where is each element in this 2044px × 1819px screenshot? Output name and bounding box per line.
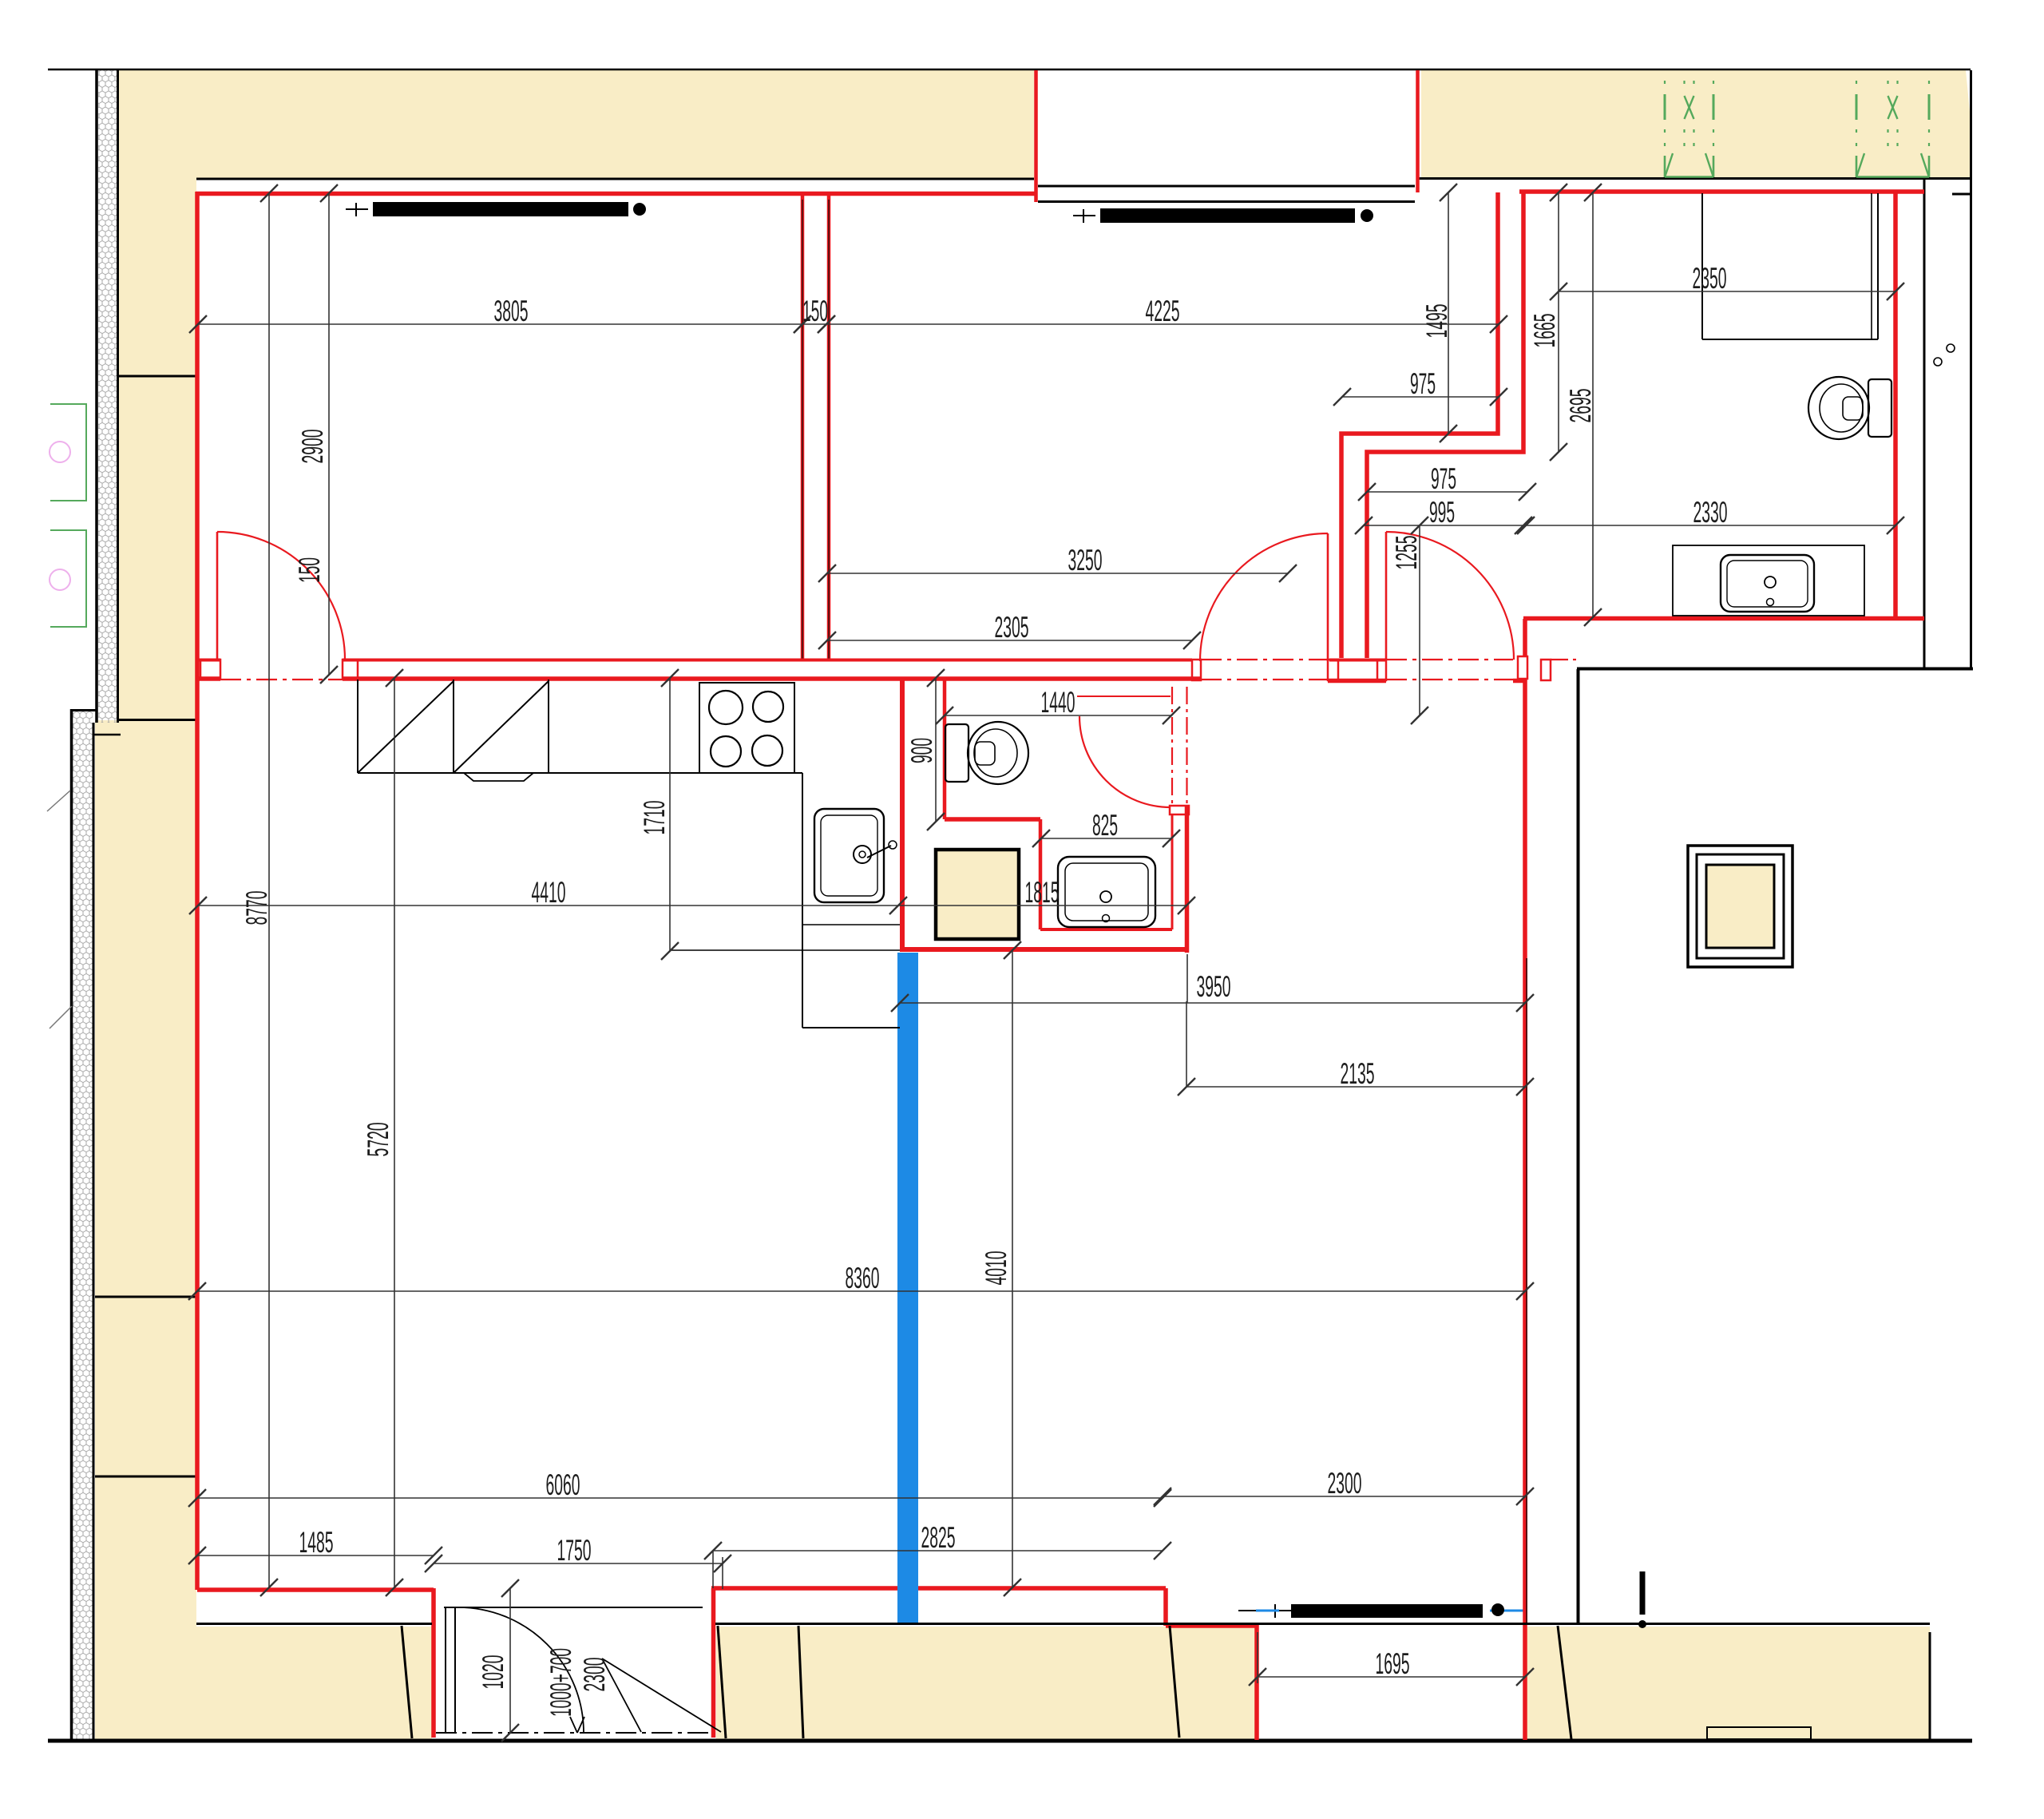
svg-text:4410: 4410 — [532, 876, 566, 909]
svg-text:1750: 1750 — [557, 1534, 592, 1567]
svg-text:2695: 2695 — [1564, 389, 1597, 423]
svg-text:1255: 1255 — [1390, 536, 1423, 570]
svg-text:3250: 3250 — [1068, 544, 1103, 577]
svg-text:2300: 2300 — [578, 1658, 611, 1692]
svg-text:2900: 2900 — [296, 430, 329, 464]
svg-text:1710: 1710 — [638, 801, 671, 835]
svg-text:8770: 8770 — [240, 891, 273, 925]
svg-text:995: 995 — [1429, 496, 1455, 529]
svg-text:3950: 3950 — [1197, 970, 1231, 1003]
svg-text:975: 975 — [1410, 367, 1436, 400]
svg-text:1665: 1665 — [1528, 314, 1561, 348]
svg-text:2350: 2350 — [1693, 262, 1727, 295]
svg-text:975: 975 — [1431, 462, 1456, 495]
svg-text:4225: 4225 — [1146, 295, 1180, 327]
svg-text:5720: 5720 — [362, 1123, 394, 1157]
svg-text:150: 150 — [802, 295, 828, 327]
svg-text:2300: 2300 — [1328, 1467, 1362, 1500]
svg-text:1000+700: 1000+700 — [545, 1648, 577, 1717]
svg-text:4010: 4010 — [980, 1251, 1012, 1286]
svg-text:1440: 1440 — [1041, 686, 1075, 719]
svg-text:8360: 8360 — [846, 1262, 880, 1294]
svg-text:1695: 1695 — [1376, 1647, 1410, 1680]
svg-text:1815: 1815 — [1025, 876, 1060, 909]
svg-text:3805: 3805 — [494, 295, 529, 327]
svg-text:1020: 1020 — [477, 1655, 509, 1690]
svg-text:2825: 2825 — [921, 1521, 956, 1554]
svg-text:2305: 2305 — [995, 611, 1029, 644]
svg-text:150: 150 — [293, 557, 326, 583]
svg-text:2330: 2330 — [1693, 496, 1728, 529]
svg-text:900: 900 — [905, 738, 938, 763]
svg-text:2135: 2135 — [1341, 1057, 1375, 1090]
svg-text:1485: 1485 — [299, 1526, 334, 1559]
svg-text:6060: 6060 — [546, 1468, 580, 1501]
svg-text:1495: 1495 — [1420, 304, 1453, 339]
svg-text:825: 825 — [1092, 809, 1118, 842]
